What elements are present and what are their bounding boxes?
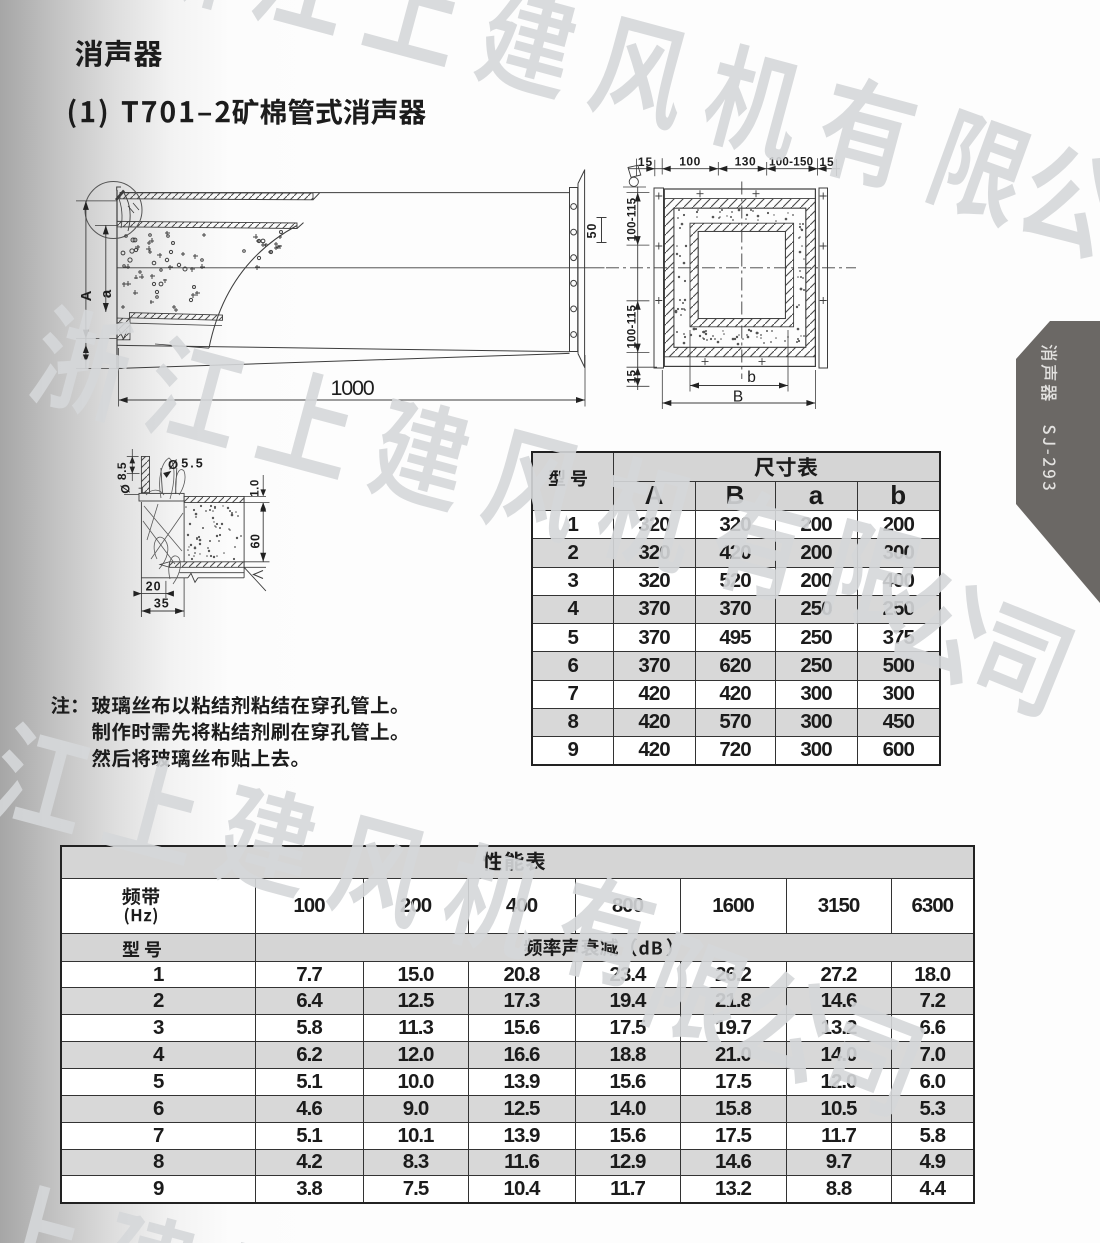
svg-text:20: 20 bbox=[146, 580, 162, 594]
svg-text:1.0: 1.0 bbox=[250, 479, 262, 497]
svg-text:100: 100 bbox=[679, 155, 701, 169]
svg-text:35: 35 bbox=[154, 597, 170, 611]
svg-text:Ø: Ø bbox=[119, 484, 133, 493]
svg-text:8.5: 8.5 bbox=[115, 462, 129, 480]
svg-text:15: 15 bbox=[819, 155, 834, 169]
svg-text:5.5: 5.5 bbox=[181, 457, 204, 471]
svg-text:15: 15 bbox=[638, 155, 653, 169]
svg-text:100-115: 100-115 bbox=[627, 305, 639, 349]
svg-text:15: 15 bbox=[627, 370, 639, 384]
svg-text:50: 50 bbox=[585, 223, 599, 239]
svg-text:100-150: 100-150 bbox=[769, 157, 813, 169]
svg-text:100-115: 100-115 bbox=[627, 197, 639, 241]
svg-text:Ø: Ø bbox=[168, 457, 178, 472]
svg-text:B: B bbox=[733, 389, 743, 406]
svg-text:b: b bbox=[747, 369, 756, 386]
svg-text:60: 60 bbox=[249, 534, 263, 549]
svg-text:130: 130 bbox=[735, 155, 757, 169]
svg-text:a: a bbox=[98, 289, 115, 298]
svg-text:A: A bbox=[78, 290, 95, 301]
svg-text:1000: 1000 bbox=[330, 376, 374, 400]
